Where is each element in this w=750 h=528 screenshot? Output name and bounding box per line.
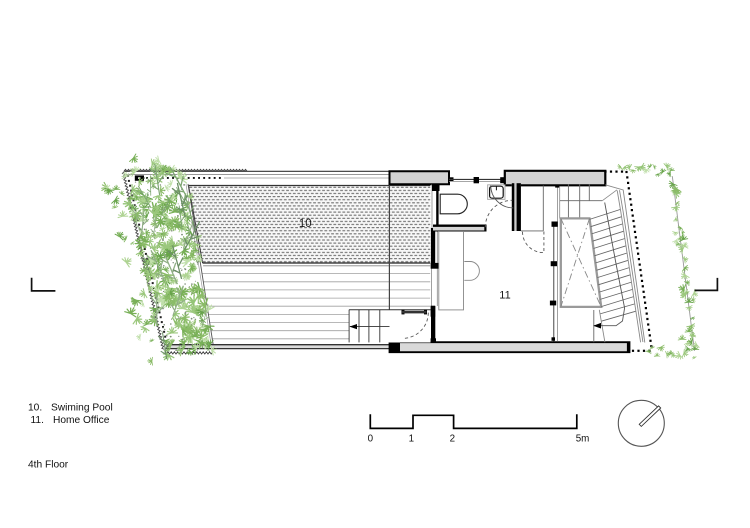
svg-text:10.: 10. (28, 402, 42, 413)
svg-text:2: 2 (450, 434, 455, 445)
svg-text:Home Office: Home Office (53, 415, 110, 426)
svg-text:4th Floor: 4th Floor (28, 460, 69, 471)
svg-text:10: 10 (299, 218, 312, 230)
svg-text:1: 1 (409, 434, 414, 445)
svg-text:Swiming Pool: Swiming Pool (51, 402, 113, 413)
svg-text:0: 0 (368, 434, 374, 445)
svg-text:5m: 5m (576, 434, 590, 445)
svg-text:11: 11 (499, 290, 510, 302)
svg-text:11.: 11. (31, 415, 44, 426)
